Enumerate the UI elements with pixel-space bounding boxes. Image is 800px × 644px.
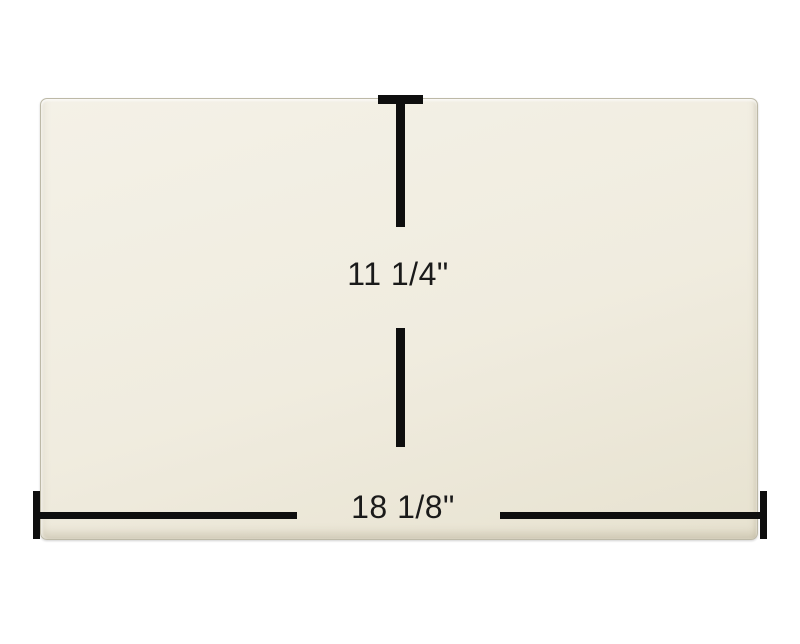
- height-dimension-upper-line: [396, 95, 405, 227]
- width-dimension-right-tick: [760, 491, 767, 539]
- diagram-canvas: 11 1/4" 18 1/8": [0, 0, 800, 644]
- width-dimension-label: 18 1/8": [351, 491, 455, 523]
- width-dimension-left-line: [36, 512, 297, 519]
- width-dimension-right-line: [500, 512, 764, 519]
- height-dimension-label: 11 1/4": [347, 258, 448, 290]
- height-dimension-lower-line: [396, 328, 405, 447]
